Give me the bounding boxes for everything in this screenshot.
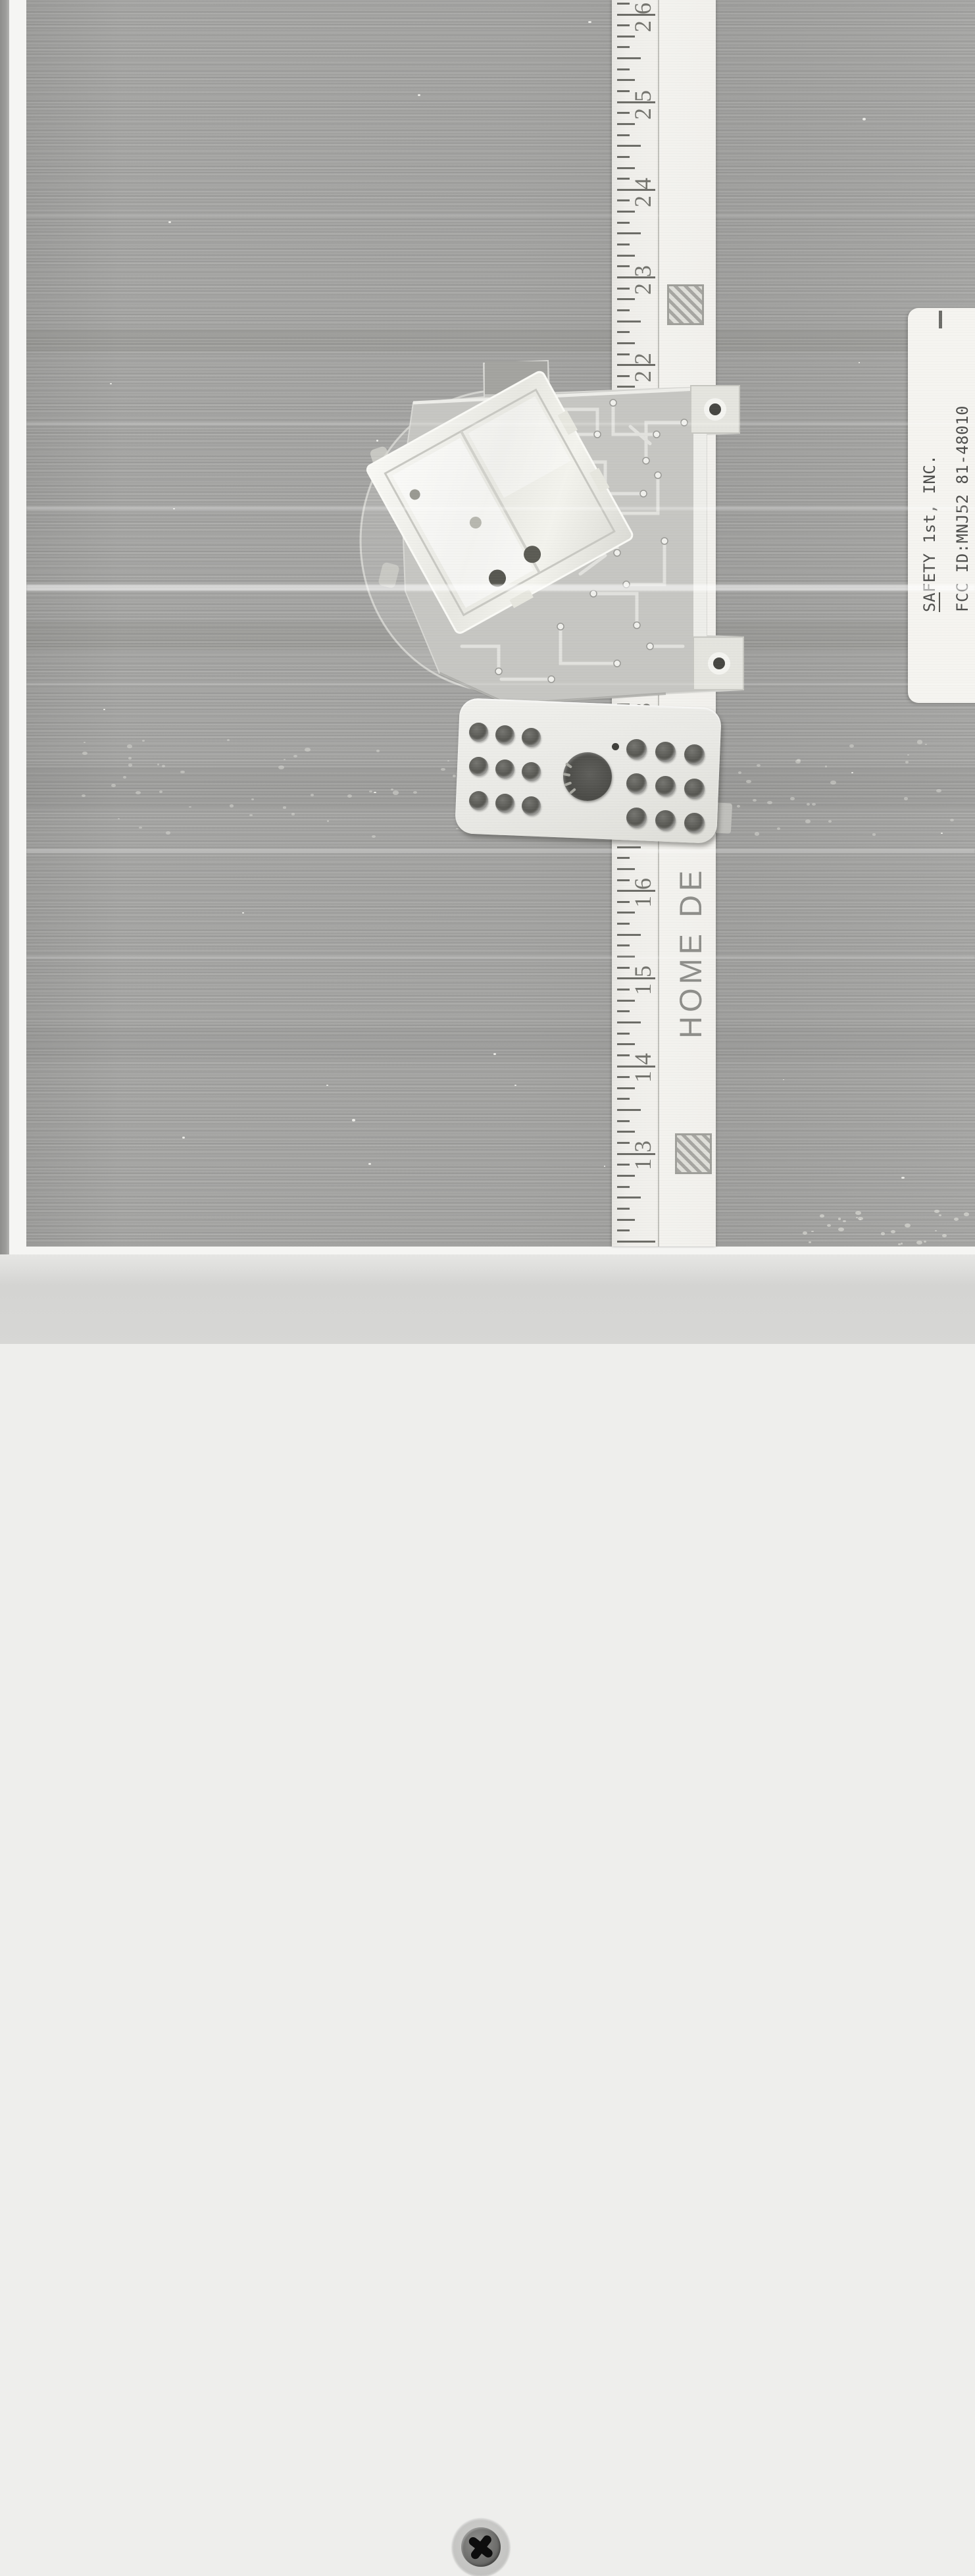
keypad-device xyxy=(455,698,722,844)
noise-speck xyxy=(825,765,827,767)
sub-tick xyxy=(617,1197,641,1198)
noise-speck xyxy=(139,827,142,829)
inch-tick xyxy=(617,1241,655,1243)
noise-speck xyxy=(925,744,927,745)
sub-tick xyxy=(617,1219,635,1221)
noise-speck xyxy=(291,813,295,815)
noise-speck xyxy=(284,759,286,760)
scanner-edge-strip xyxy=(0,0,9,1344)
tape-number: 25 xyxy=(620,79,666,125)
noise-speck xyxy=(230,804,234,807)
sub-tick xyxy=(617,134,630,136)
noise-speck xyxy=(166,831,170,835)
noise-speck xyxy=(374,792,376,794)
sub-tick xyxy=(617,145,641,147)
sub-tick xyxy=(617,222,630,224)
noise-speck xyxy=(757,764,761,767)
noise-speck xyxy=(447,760,449,761)
sub-tick xyxy=(617,1033,630,1035)
noise-speck xyxy=(84,742,86,743)
noise-speck xyxy=(849,744,854,748)
noise-speck xyxy=(830,781,836,785)
noise-speck xyxy=(907,754,909,756)
board-right-edge xyxy=(693,432,707,637)
noise-speck xyxy=(136,791,141,794)
noise-speck xyxy=(514,1085,516,1086)
pcb-assembly xyxy=(342,332,757,731)
sub-tick xyxy=(617,57,641,59)
noise-speck xyxy=(368,1163,371,1165)
noise-speck xyxy=(588,21,591,23)
noise-speck xyxy=(935,1230,937,1231)
sub-tick xyxy=(617,846,641,848)
noise-speck xyxy=(456,828,459,830)
tape-number: 15 xyxy=(620,954,666,1000)
mounting-tab-top xyxy=(691,386,739,433)
noise-speck xyxy=(103,709,105,710)
sub-tick xyxy=(617,156,630,158)
noise-speck xyxy=(783,1079,784,1080)
tape-number: 26 xyxy=(620,0,666,38)
sub-tick xyxy=(617,1186,630,1188)
noise-speck xyxy=(777,827,780,830)
noise-speck xyxy=(418,94,420,96)
noise-speck xyxy=(811,1231,814,1232)
noise-speck xyxy=(934,1210,939,1214)
noise-speck xyxy=(964,1212,969,1216)
noise-speck xyxy=(82,752,87,756)
noise-speck xyxy=(891,1230,895,1233)
mounting-tab-bottom xyxy=(693,637,743,690)
noise-speck xyxy=(376,750,380,752)
noise-speck xyxy=(453,775,456,777)
noise-speck xyxy=(941,833,943,834)
sub-tick xyxy=(617,46,630,48)
sub-tick xyxy=(617,1010,630,1012)
noise-speck xyxy=(916,1241,922,1245)
noise-speck xyxy=(901,1243,903,1244)
noise-speck xyxy=(872,833,875,835)
noise-speck xyxy=(372,835,376,838)
noise-speck xyxy=(173,508,176,510)
label-text: SAFETY 1st, INC. FCC ID:MNJ52 81-48010 xyxy=(913,308,975,612)
noise-speck xyxy=(901,1177,904,1179)
noise-speck xyxy=(807,803,810,806)
noise-speck xyxy=(123,776,126,779)
sub-tick xyxy=(617,68,630,70)
sub-tick xyxy=(617,244,630,245)
noise-speck xyxy=(283,806,286,808)
tape-number: 16 xyxy=(620,867,666,913)
noise-speck xyxy=(942,1234,947,1237)
noise-speck xyxy=(790,797,795,800)
sub-tick xyxy=(617,1120,630,1122)
noise-speck xyxy=(954,1218,959,1221)
tape-number: 13 xyxy=(620,1129,666,1175)
noise-speck xyxy=(157,763,159,765)
label-fcc-id-line: FCC ID:MNJ52 81-48010 xyxy=(946,308,975,612)
sub-tick xyxy=(617,923,630,925)
noise-speck xyxy=(924,1241,926,1243)
noise-speck xyxy=(805,819,811,823)
sub-tick xyxy=(617,1229,630,1231)
noise-speck xyxy=(820,1214,824,1218)
noise-speck xyxy=(858,1217,863,1220)
noise-speck xyxy=(950,819,955,822)
noise-speck xyxy=(326,1085,328,1086)
label-company-line: SAFETY 1st, INC. xyxy=(913,308,946,612)
noise-speck xyxy=(797,759,801,761)
tape-number: 14 xyxy=(620,1042,666,1088)
noise-speck xyxy=(493,1053,497,1055)
home-depot-logo-icon xyxy=(675,1133,712,1174)
sub-tick xyxy=(617,321,641,322)
noise-speck xyxy=(128,763,132,766)
sub-tick xyxy=(617,934,641,936)
fcc-label: SAFETY 1st, INC. FCC ID:MNJ52 81-48010 xyxy=(908,308,975,703)
noise-speck xyxy=(767,801,772,805)
noise-speck xyxy=(391,788,393,790)
tape-number: 23 xyxy=(620,254,666,300)
noise-speck xyxy=(755,832,760,835)
noise-speck xyxy=(182,1137,185,1139)
noise-speck xyxy=(604,1166,606,1167)
noise-speck xyxy=(159,790,163,793)
noise-speck xyxy=(82,794,86,797)
sub-tick xyxy=(617,857,630,859)
noise-speck xyxy=(142,740,145,742)
noise-speck xyxy=(859,362,860,363)
noise-speck xyxy=(803,1231,807,1235)
noise-speck xyxy=(305,748,310,752)
noise-speck xyxy=(118,818,120,819)
noise-speck xyxy=(242,912,244,914)
sub-tick xyxy=(617,309,630,311)
noise-speck xyxy=(838,1218,841,1220)
sub-tick xyxy=(617,944,630,946)
noise-speck xyxy=(905,761,909,763)
noise-speck xyxy=(111,784,116,787)
noise-speck xyxy=(168,221,171,223)
noise-speck xyxy=(843,1220,846,1222)
noise-speck xyxy=(917,740,923,744)
noise-speck xyxy=(939,1214,942,1216)
sub-tick xyxy=(617,232,641,234)
noise-speck xyxy=(881,1232,885,1235)
noise-speck xyxy=(293,755,297,758)
sub-tick xyxy=(617,1208,630,1210)
noise-speck xyxy=(936,789,941,792)
photo-shade-band xyxy=(26,1027,975,1060)
noise-speck xyxy=(393,790,399,794)
noise-speck xyxy=(851,772,853,773)
noise-speck xyxy=(863,118,866,120)
noise-speck xyxy=(127,744,132,748)
tape-number: 24 xyxy=(620,167,666,213)
scanner-bed-band xyxy=(0,1254,975,1344)
noise-speck xyxy=(110,383,112,384)
noise-speck xyxy=(327,820,329,821)
sub-tick xyxy=(617,1098,630,1100)
noise-speck xyxy=(128,757,132,760)
noise-speck xyxy=(827,1224,831,1227)
sub-tick xyxy=(617,1109,641,1111)
noise-speck xyxy=(838,1227,844,1231)
noise-speck xyxy=(227,739,230,741)
noise-speck xyxy=(249,814,253,816)
noise-speck xyxy=(905,1224,911,1227)
home-depot-logo-icon xyxy=(667,284,704,325)
noise-speck xyxy=(809,1241,811,1243)
noise-speck xyxy=(855,1211,861,1215)
noise-speck xyxy=(352,1119,355,1121)
sub-tick xyxy=(617,1021,641,1023)
noise-speck xyxy=(828,820,832,823)
noise-speck xyxy=(738,771,741,774)
noise-speck xyxy=(162,765,166,767)
